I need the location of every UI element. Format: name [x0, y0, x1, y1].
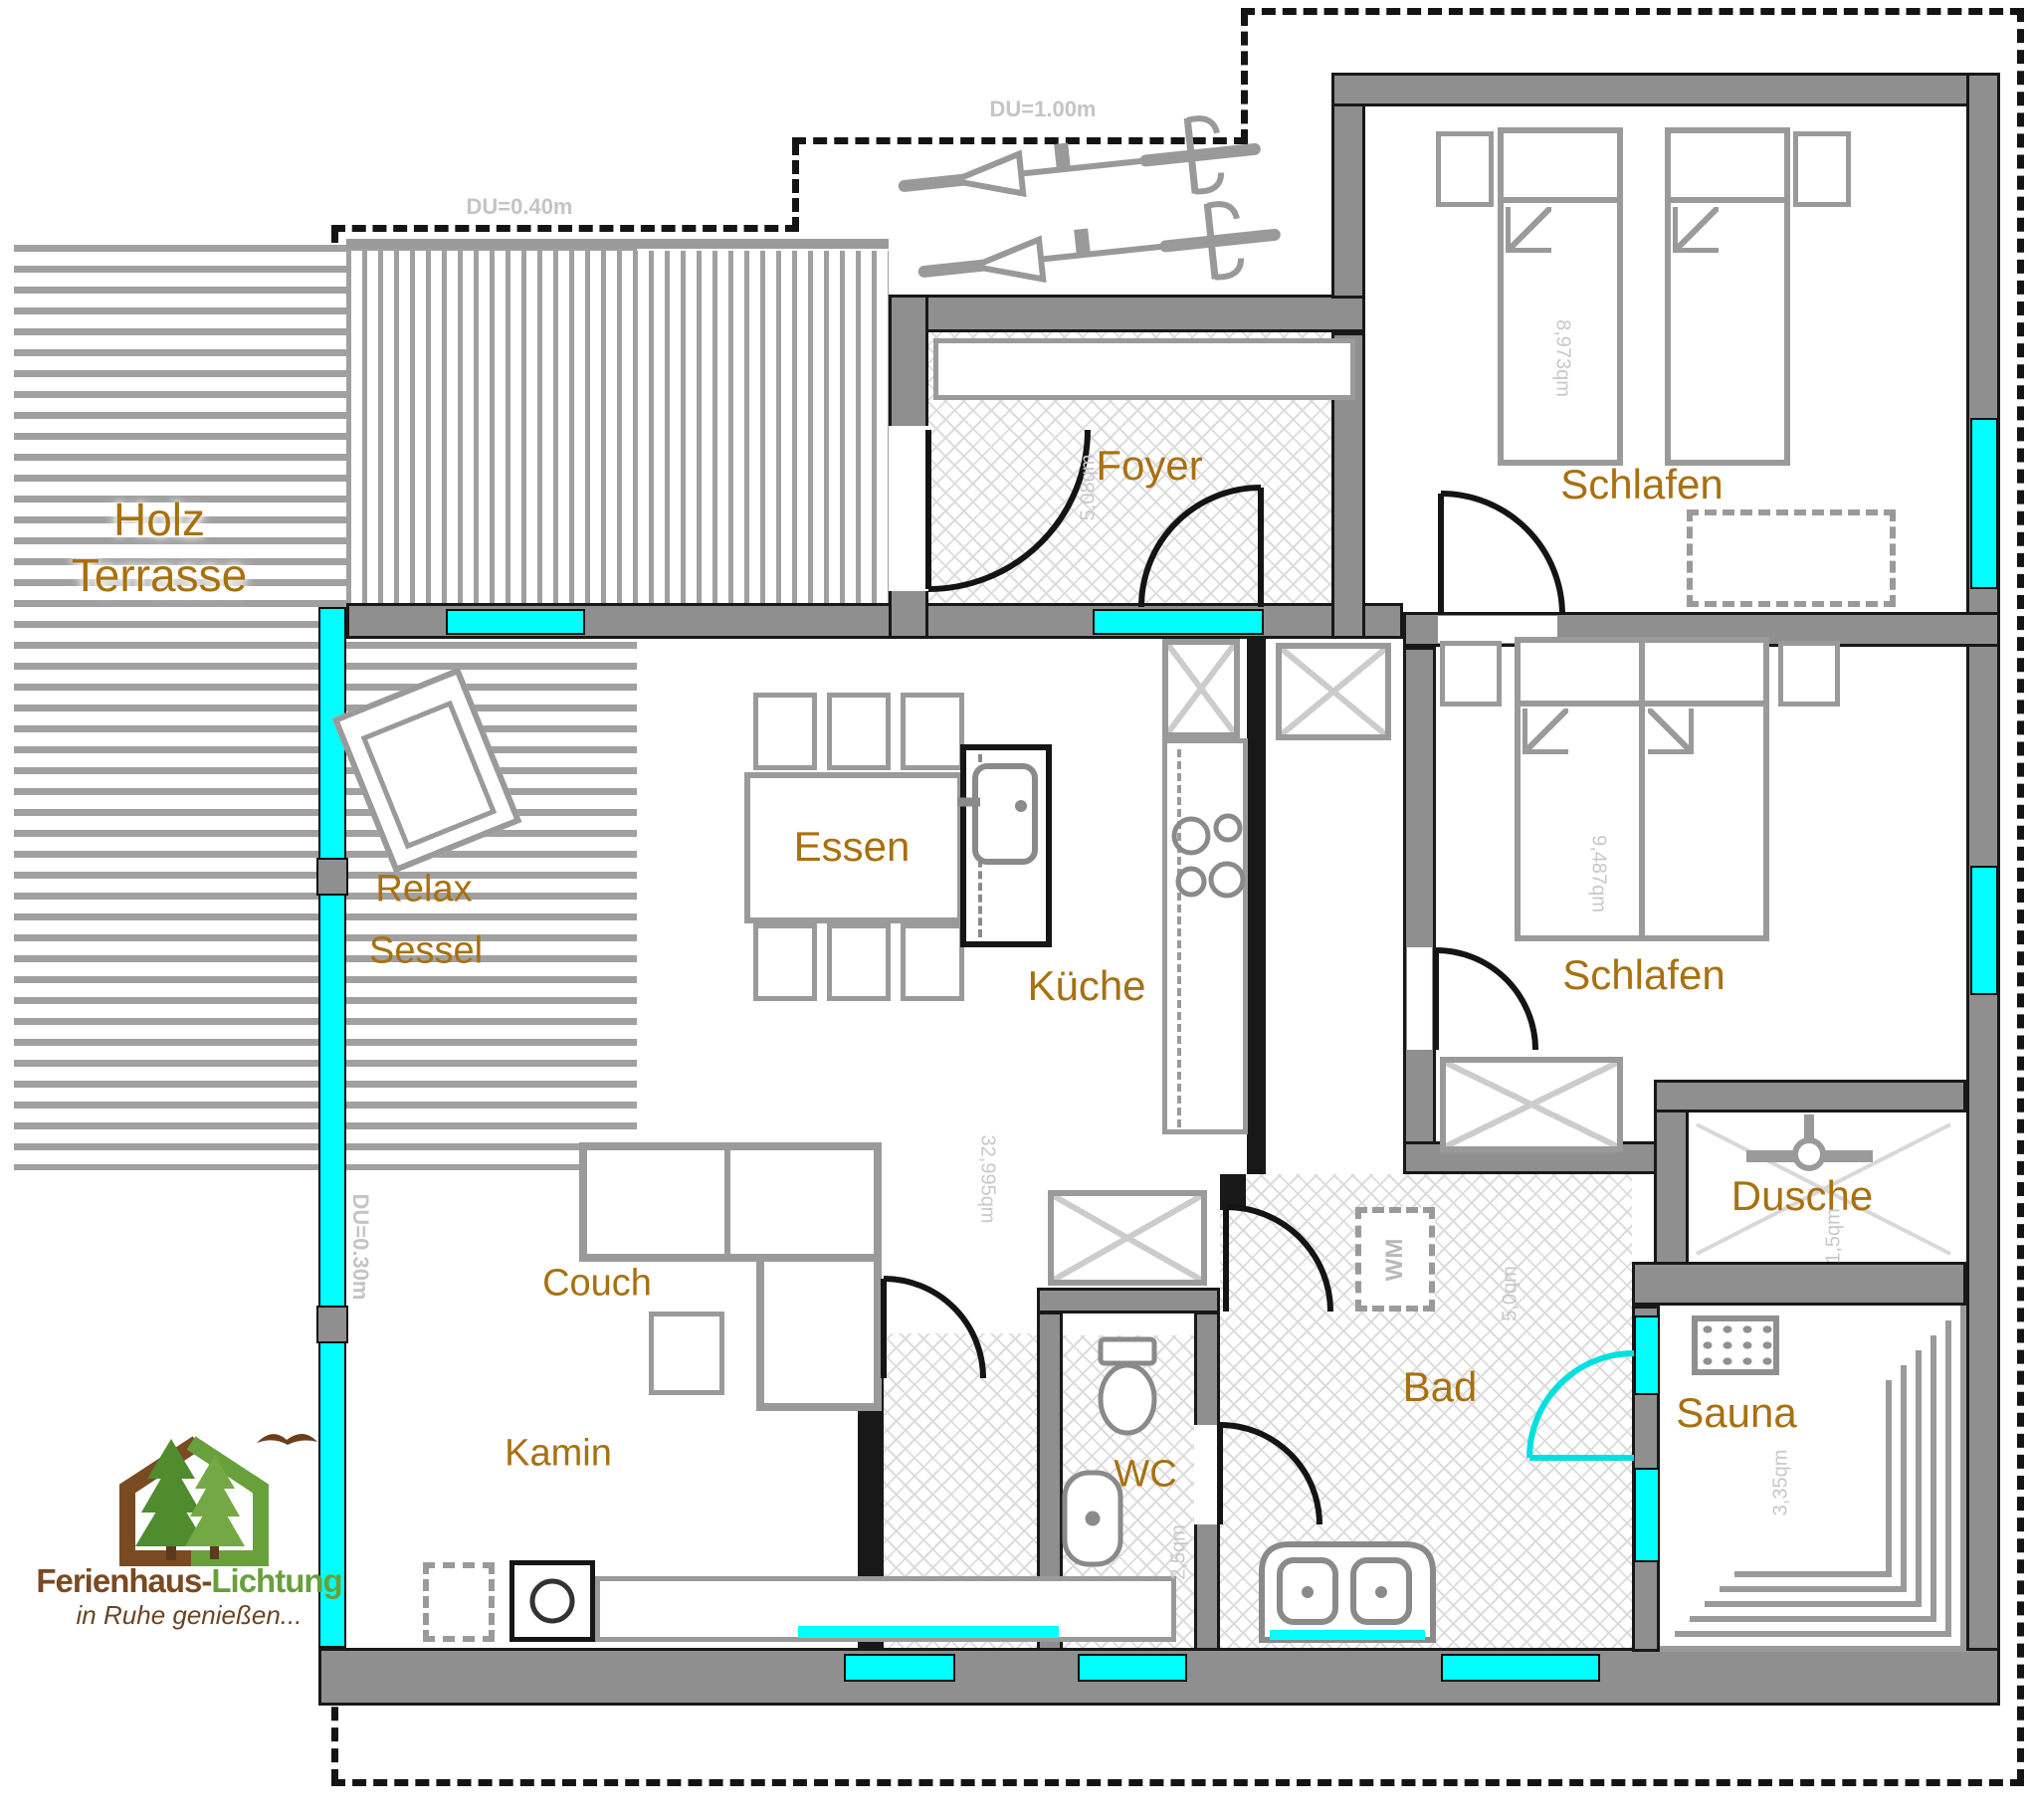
nightstand	[1440, 641, 1502, 707]
bed-line	[1671, 197, 1784, 203]
chair	[901, 923, 964, 1001]
chair	[753, 693, 817, 770]
bicycle-icon	[920, 197, 1279, 309]
sauna-heater	[1692, 1315, 1779, 1375]
brand-logo: Ferienhaus-Lichtung in Ruhe genießen...	[20, 1421, 358, 1630]
wall-segment	[1632, 1262, 1966, 1306]
shower-area: 1,5qm	[1823, 1208, 1846, 1264]
relax-label-line2: Sessel	[369, 930, 483, 973]
hall-wardrobe	[1276, 643, 1391, 740]
cushion-divider	[724, 1150, 730, 1254]
blanket-fold	[1506, 207, 1551, 253]
wall-segment	[889, 295, 1365, 332]
sauna-window	[1634, 1315, 1660, 1395]
bed-line	[1504, 197, 1617, 203]
terrace-label-line1: Holz	[113, 493, 205, 546]
boundary-dash-step1	[792, 141, 799, 231]
bedroom2-door-opening	[1407, 947, 1432, 1050]
boundary-dash-bottom	[331, 1779, 2024, 1786]
fireplace	[509, 1560, 595, 1642]
window	[844, 1654, 955, 1682]
wall-segment	[1247, 639, 1266, 1174]
foyer-label: Foyer	[1096, 442, 1202, 490]
counter-edge	[1177, 749, 1181, 1127]
blanket-fold	[1648, 708, 1694, 754]
tv	[798, 1626, 1059, 1638]
foyer-sideboard	[933, 338, 1355, 400]
shower-label: Dusche	[1731, 1172, 1873, 1220]
fireplace-label: Kamin	[505, 1433, 612, 1476]
kitchen-tall-cabinet	[1162, 639, 1240, 738]
brand-name-brown: Ferienhaus-	[36, 1562, 211, 1599]
wall-segment	[1654, 1080, 1966, 1112]
floor-plan: DU=0.40m DU=1.00m DU=0.30m Holz Terrasse	[0, 0, 2030, 1820]
coffee-table	[649, 1312, 724, 1395]
couch-label: Couch	[542, 1263, 652, 1306]
sauna-area: 3,35qm	[1770, 1450, 1793, 1517]
logo-graphic	[20, 1421, 358, 1570]
bath-area: 5,0qm	[1500, 1266, 1522, 1321]
wall-segment	[1331, 73, 2000, 106]
overhang-label-100: DU=1.00m	[989, 97, 1096, 122]
wall-segment	[1331, 100, 1365, 299]
wc-label: WC	[1114, 1454, 1176, 1497]
wc-door-opening	[1194, 1425, 1220, 1524]
window	[1078, 1654, 1187, 1682]
foyer-area: 5,08qm	[1078, 455, 1101, 521]
nightstand	[1436, 131, 1494, 207]
boundary-dash-right	[2017, 8, 2024, 1783]
glass-front-mullion	[316, 1306, 348, 1343]
window	[446, 609, 585, 635]
sauna-label: Sauna	[1676, 1389, 1796, 1437]
boundary-dash-top3	[1241, 8, 2024, 15]
glass-front-mullion	[316, 858, 348, 896]
sink-unit-edge	[978, 754, 982, 937]
entry-door-opening	[889, 426, 928, 591]
bedroom1-label: Schlafen	[1560, 461, 1723, 508]
bed-single	[1498, 127, 1623, 466]
fireplace-dashed-zone	[423, 1562, 495, 1642]
window	[1970, 866, 1998, 995]
wall-segment	[1037, 1288, 1220, 1314]
wc-area: 2,5qm	[1168, 1524, 1191, 1580]
boundary-dash-step2	[1241, 12, 1248, 143]
chair	[901, 693, 964, 770]
bed-double	[1515, 637, 1769, 941]
brand-tagline: in Ruhe genießen...	[77, 1600, 303, 1631]
bath-label: Bad	[1403, 1363, 1478, 1411]
kitchen-label: Küche	[1027, 962, 1145, 1010]
chair	[827, 693, 891, 770]
brand-name-green: Lichtung	[211, 1562, 341, 1599]
bedroom2-door-swing	[1436, 950, 1535, 1050]
brand-name: Ferienhaus-Lichtung	[36, 1562, 341, 1600]
blanket-fold	[1522, 708, 1568, 754]
wall-segment	[1037, 1312, 1063, 1706]
wall-segment	[1220, 1174, 1246, 1210]
terrace-label-line2: Terrasse	[72, 548, 247, 602]
bedroom1-area: 8,973qm	[1551, 319, 1574, 397]
window	[1970, 418, 1998, 589]
sauna-window	[1634, 1468, 1660, 1562]
boundary-dash-top1	[331, 225, 799, 232]
foyer-glass-door	[1093, 609, 1264, 635]
dining-label: Essen	[794, 823, 911, 871]
sideboard	[1048, 1190, 1207, 1286]
bed-divider	[1639, 643, 1645, 935]
overhang-label-030: DU=0.30m	[347, 1193, 373, 1300]
kitchen-counter	[1162, 738, 1248, 1134]
couch-section	[579, 1142, 882, 1262]
bedroom1-door-swing	[1441, 494, 1562, 615]
wardrobe-dashed	[1687, 509, 1896, 607]
boundary-dash-top2	[792, 137, 1248, 144]
porch-roof-edge	[346, 239, 889, 249]
chair	[827, 923, 891, 1001]
kitchen-sink-unit	[960, 744, 1052, 947]
covered-porch-deck	[346, 251, 889, 605]
bedroom2-area: 9,487qm	[1587, 835, 1610, 912]
blanket-fold	[1673, 207, 1719, 253]
wardrobe	[1440, 1057, 1623, 1152]
chair	[753, 923, 817, 1001]
overhang-label-040: DU=0.40m	[466, 194, 572, 220]
bicycle-icon	[901, 111, 1259, 224]
bird-icon	[257, 1434, 317, 1445]
relax-chair-seat	[361, 701, 498, 850]
wall-segment	[1403, 647, 1436, 1174]
bedroom2-label: Schlafen	[1562, 951, 1725, 999]
washing-machine-label: WM	[1381, 1239, 1409, 1282]
nightstand	[1778, 641, 1840, 707]
bed-single	[1665, 127, 1790, 466]
living-area: 32,995qm	[976, 1135, 999, 1224]
relax-label-line1: Relax	[375, 869, 472, 911]
nightstand	[1793, 131, 1851, 207]
window	[1441, 1654, 1600, 1682]
